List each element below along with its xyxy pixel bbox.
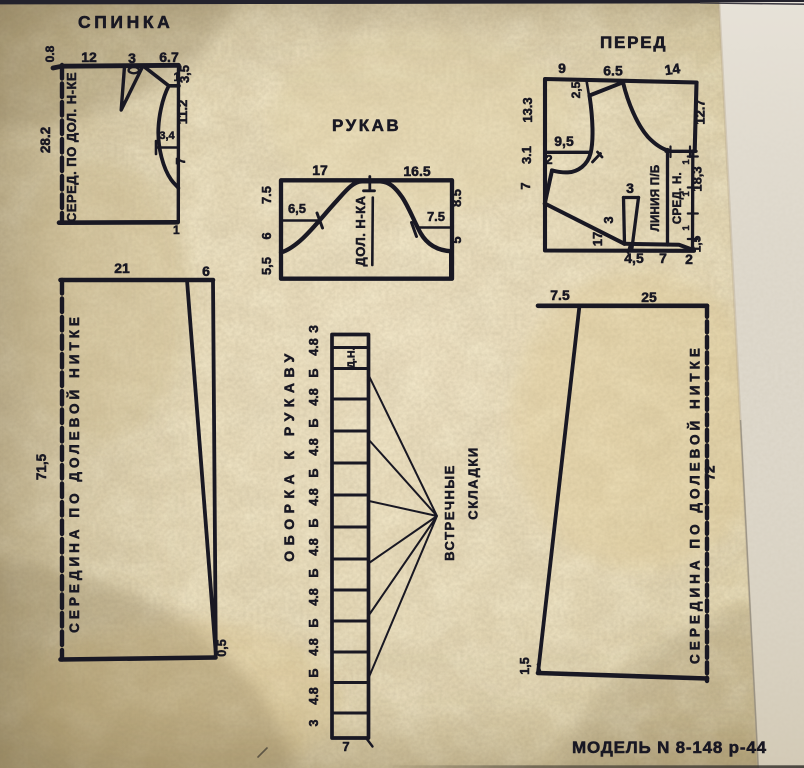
svg-text:Б: Б [307,418,321,427]
svg-text:7.5: 7.5 [550,287,570,303]
svg-text:16.5: 16.5 [403,163,430,179]
svg-text:РУКАВ: РУКАВ [332,116,401,135]
svg-text:Б: Б [307,668,321,677]
svg-text:Б: Б [307,618,321,627]
svg-text:12: 12 [81,49,97,65]
svg-text:Д.Н.: Д.Н. [346,347,358,368]
svg-text:ОБОРКА К РУКАВУ: ОБОРКА К РУКАВУ [281,348,297,561]
svg-text:9: 9 [558,60,566,76]
svg-text:4.8: 4.8 [307,687,321,704]
svg-text:0.8: 0.8 [43,45,57,62]
svg-text:4.8: 4.8 [307,338,321,355]
svg-text:1,5: 1,5 [518,657,532,674]
svg-text:МОДЕЛЬ N 8-148 р-44: МОДЕЛЬ N 8-148 р-44 [572,738,767,757]
svg-text:7: 7 [659,250,667,266]
svg-text:14: 14 [663,60,681,78]
svg-text:4.8: 4.8 [307,438,321,455]
svg-text:4.8: 4.8 [307,488,321,505]
svg-text:2: 2 [545,152,552,167]
svg-text:СЕРЕДИНА ПО ДОЛЕВОЙ НИТКЕ: СЕРЕДИНА ПО ДОЛЕВОЙ НИТКЕ [688,344,703,664]
svg-text:1,5: 1,5 [690,235,704,252]
svg-text:1: 1 [681,159,692,165]
svg-text:8.5: 8.5 [449,189,464,207]
svg-text:71,5: 71,5 [34,453,49,480]
svg-text:6: 6 [259,232,274,239]
svg-text:Б: Б [307,518,321,527]
svg-text:3,5: 3,5 [177,65,192,83]
svg-text:6.5: 6.5 [603,63,623,79]
svg-text:ДОЛ. Н-КА: ДОЛ. Н-КА [353,195,368,266]
svg-text:СЕРЕД. ПО ДОЛ. Н-КЕ: СЕРЕД. ПО ДОЛ. Н-КЕ [64,72,79,222]
svg-text:СРЕД. Н.: СРЕД. Н. [672,172,684,224]
svg-text:ЛИНИЯ П/Б: ЛИНИЯ П/Б [650,165,662,232]
svg-text:11.2: 11.2 [175,100,190,125]
svg-text:4.8: 4.8 [307,388,321,405]
svg-text:17: 17 [590,232,605,246]
svg-text:2,5: 2,5 [569,81,583,98]
svg-text:5: 5 [449,236,464,243]
svg-text:4,5: 4,5 [624,250,644,266]
svg-text:7: 7 [342,739,349,754]
svg-text:Б: Б [307,568,321,577]
svg-text:ПЕРЕД: ПЕРЕД [600,33,667,52]
svg-text:12.7: 12.7 [693,99,708,124]
svg-text:Б: Б [307,468,321,477]
svg-text:СЕРЕДИНА ПО ДОЛЕВОЙ НИТКЕ: СЕРЕДИНА ПО ДОЛЕВОЙ НИТКЕ [67,313,82,633]
svg-text:1: 1 [681,225,692,231]
svg-text:3: 3 [626,180,634,196]
svg-text:6.7: 6.7 [159,49,179,65]
svg-text:72: 72 [703,465,718,480]
svg-text:5,5: 5,5 [259,257,274,275]
svg-text:0,5: 0,5 [215,639,229,656]
svg-text:З: З [307,325,321,333]
svg-text:9,5: 9,5 [554,133,574,149]
svg-text:6: 6 [202,263,210,279]
svg-text:7.5: 7.5 [427,209,445,224]
svg-text:4.8: 4.8 [307,638,321,655]
svg-text:7: 7 [518,182,533,189]
svg-text:Б: Б [307,368,321,377]
svg-text:18,3: 18,3 [690,166,705,191]
svg-text:25: 25 [641,289,657,305]
svg-text:3: 3 [128,50,136,66]
svg-text:17: 17 [312,162,328,178]
svg-text:4.8: 4.8 [307,588,321,605]
svg-text:1: 1 [173,223,180,237]
svg-text:3,4: 3,4 [159,130,175,142]
svg-text:3: 3 [307,719,321,726]
svg-text:7.5: 7.5 [259,186,274,204]
svg-text:6,5: 6,5 [288,201,306,216]
svg-text:СКЛАДКИ: СКЛАДКИ [466,446,481,519]
svg-text:7: 7 [173,157,188,164]
svg-text:2: 2 [685,251,693,267]
svg-text:СПИНКА: СПИНКА [78,12,173,32]
svg-text:ВСТРЕЧНЫЕ: ВСТРЕЧНЫЕ [442,464,457,561]
svg-text:21: 21 [114,260,130,276]
svg-text:3.1: 3.1 [519,146,534,164]
svg-text:3: 3 [601,216,616,223]
svg-text:4.8: 4.8 [307,538,321,555]
svg-text:28.2: 28.2 [38,127,53,153]
svg-text:13.3: 13.3 [520,97,535,122]
